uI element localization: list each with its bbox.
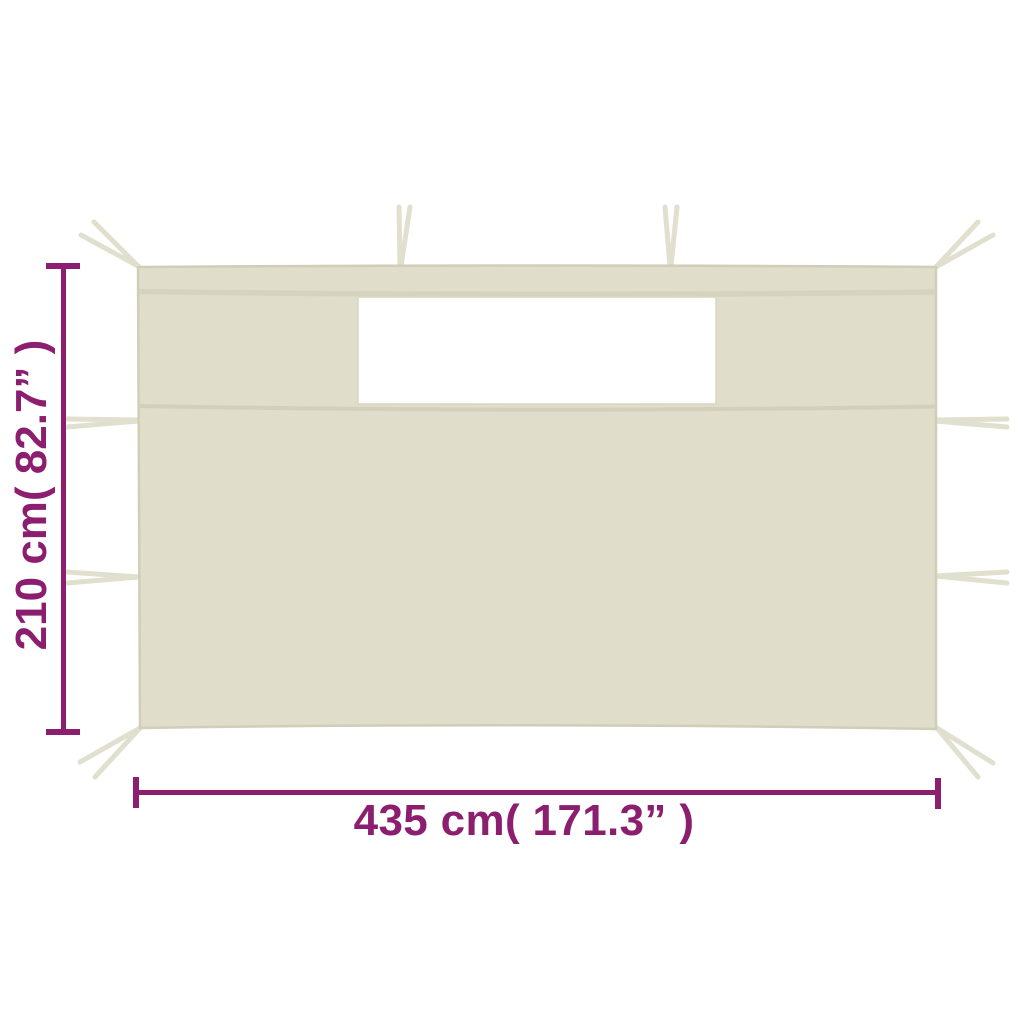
svg-text:210 cm( 82.7” ): 210 cm( 82.7” ) xyxy=(7,340,56,651)
svg-text:435 cm( 171.3” ): 435 cm( 171.3” ) xyxy=(354,796,695,845)
